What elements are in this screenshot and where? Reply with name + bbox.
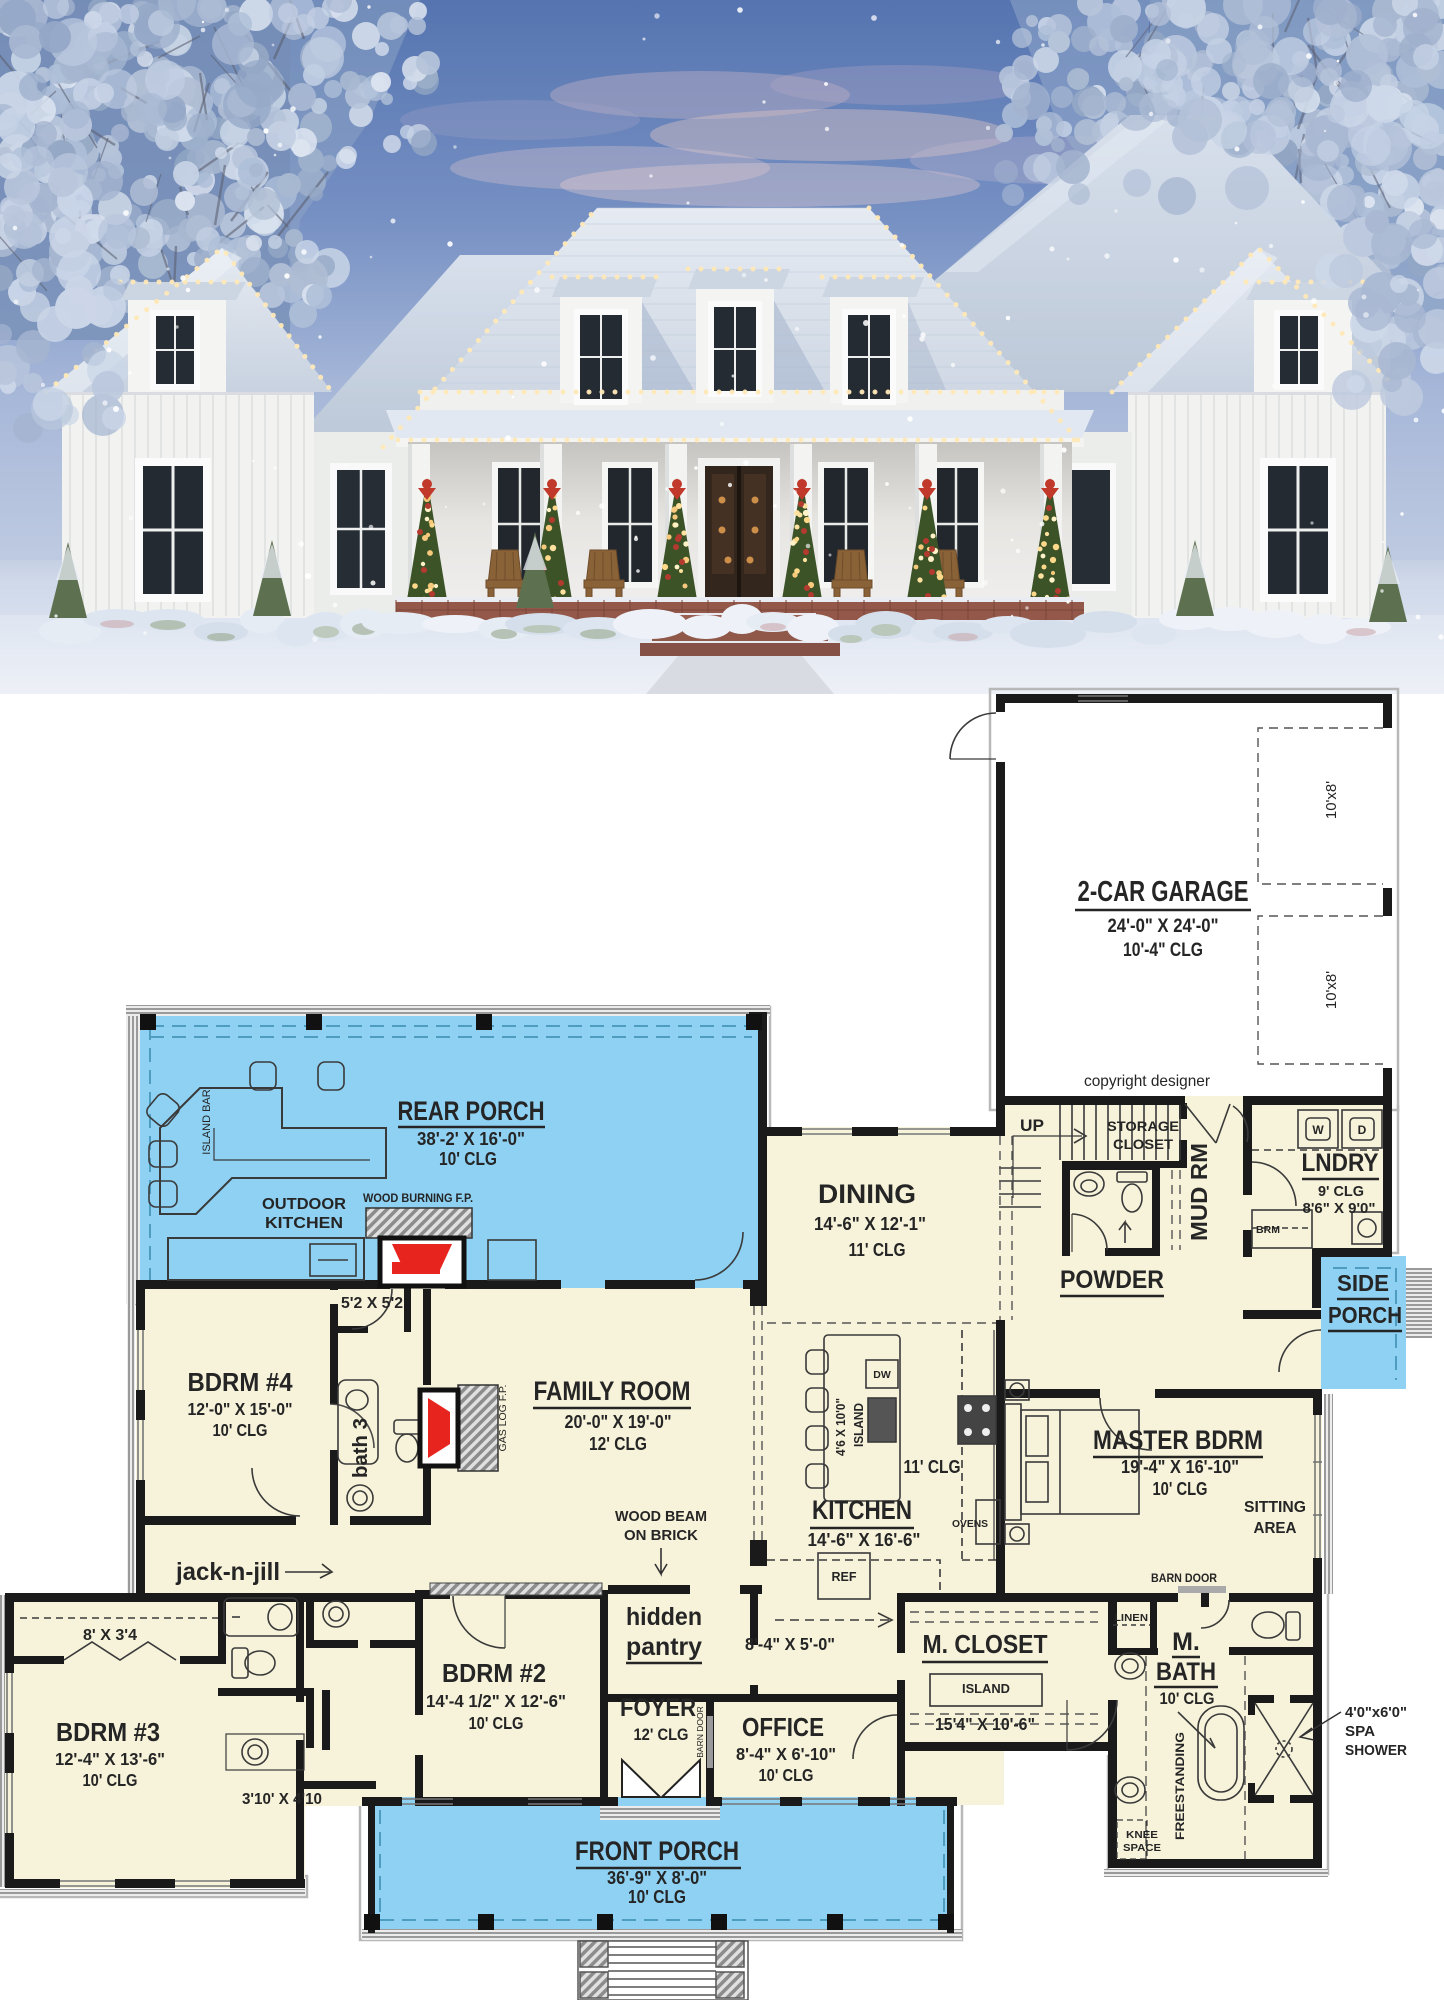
svg-text:KITCHEN: KITCHEN xyxy=(265,1215,343,1232)
svg-text:copyright designer: copyright designer xyxy=(1084,1073,1211,1090)
svg-text:BDRM #4: BDRM #4 xyxy=(188,1367,293,1397)
svg-text:24'-0" X 24'-0": 24'-0" X 24'-0" xyxy=(1108,916,1219,937)
svg-text:FREESTANDING: FREESTANDING xyxy=(1173,1732,1187,1840)
svg-text:10' CLG: 10' CLG xyxy=(628,1887,686,1907)
svg-text:LINEN: LINEN xyxy=(1114,1613,1148,1624)
svg-text:hidden: hidden xyxy=(626,1603,702,1631)
svg-text:FAMILY ROOM: FAMILY ROOM xyxy=(534,1376,691,1406)
svg-text:2-CAR GARAGE: 2-CAR GARAGE xyxy=(1078,876,1249,908)
svg-text:14'-4 1/2" X 12'-6": 14'-4 1/2" X 12'-6" xyxy=(426,1691,566,1711)
svg-text:DINING: DINING xyxy=(818,1179,916,1209)
svg-text:UP: UP xyxy=(1020,1116,1044,1135)
svg-text:STORAGE: STORAGE xyxy=(1107,1118,1179,1134)
svg-text:19'-4" X 16'-10": 19'-4" X 16'-10" xyxy=(1121,1457,1239,1477)
svg-text:REF: REF xyxy=(832,1570,857,1584)
svg-text:10' CLG: 10' CLG xyxy=(1153,1479,1208,1499)
svg-text:12'-4" X 13'-6": 12'-4" X 13'-6" xyxy=(55,1749,165,1769)
svg-text:jack-n-jill: jack-n-jill xyxy=(175,1558,280,1586)
svg-text:12' CLG: 12' CLG xyxy=(634,1725,689,1744)
svg-text:MUD RM: MUD RM xyxy=(1186,1143,1212,1241)
svg-text:BDRM #3: BDRM #3 xyxy=(56,1717,160,1747)
svg-text:10'x8': 10'x8' xyxy=(1323,781,1340,819)
svg-text:3'10' X 4'10: 3'10' X 4'10 xyxy=(242,1791,322,1808)
svg-text:38'-2' X 16'-0": 38'-2' X 16'-0" xyxy=(417,1129,525,1149)
svg-text:10' CLG: 10' CLG xyxy=(83,1770,138,1790)
svg-text:DW: DW xyxy=(873,1369,891,1381)
svg-text:OUTDOOR: OUTDOOR xyxy=(262,1196,346,1213)
svg-text:M. CLOSET: M. CLOSET xyxy=(923,1629,1048,1659)
svg-text:OFFICE: OFFICE xyxy=(742,1712,824,1742)
svg-text:SPA: SPA xyxy=(1345,1723,1375,1740)
svg-text:SITTING: SITTING xyxy=(1244,1499,1306,1516)
svg-text:WOOD BEAM: WOOD BEAM xyxy=(615,1508,707,1525)
svg-text:BARN DOOR: BARN DOOR xyxy=(695,1706,705,1757)
svg-text:ON BRICK: ON BRICK xyxy=(624,1527,698,1544)
svg-text:11' CLG: 11' CLG xyxy=(904,1457,961,1477)
svg-text:SHOWER: SHOWER xyxy=(1345,1742,1407,1759)
svg-text:PORCH: PORCH xyxy=(1328,1302,1402,1328)
svg-text:4'0"x6'0": 4'0"x6'0" xyxy=(1345,1704,1407,1721)
svg-text:MASTER BDRM: MASTER BDRM xyxy=(1093,1425,1263,1455)
svg-text:M.: M. xyxy=(1172,1628,1200,1656)
svg-text:FRONT PORCH: FRONT PORCH xyxy=(575,1836,739,1866)
svg-text:BARN DOOR: BARN DOOR xyxy=(1151,1573,1218,1585)
svg-text:12' CLG: 12' CLG xyxy=(589,1434,647,1454)
svg-text:ISLAND: ISLAND xyxy=(962,1681,1010,1696)
svg-text:GAS LOG F.P.: GAS LOG F.P. xyxy=(497,1385,509,1452)
svg-text:W: W xyxy=(1312,1123,1324,1137)
svg-text:15'4" X 10'-6": 15'4" X 10'-6" xyxy=(935,1714,1035,1734)
svg-text:12'-0" X 15'-0": 12'-0" X 15'-0" xyxy=(188,1399,293,1419)
svg-text:10' CLG: 10' CLG xyxy=(469,1713,524,1733)
svg-text:8'-4" X 5'-0": 8'-4" X 5'-0" xyxy=(745,1634,835,1654)
svg-text:FOYER: FOYER xyxy=(620,1694,696,1722)
svg-text:5'2 X 5'2: 5'2 X 5'2 xyxy=(341,1295,403,1312)
svg-text:KITCHEN: KITCHEN xyxy=(812,1495,912,1525)
svg-text:ISLAND BAR: ISLAND BAR xyxy=(201,1089,213,1154)
svg-text:10' CLG: 10' CLG xyxy=(439,1149,497,1169)
svg-text:8'-4" X 6'-10": 8'-4" X 6'-10" xyxy=(736,1744,836,1764)
svg-text:10'x8': 10'x8' xyxy=(1323,971,1340,1009)
svg-text:11' CLG: 11' CLG xyxy=(849,1240,906,1260)
svg-text:BATH: BATH xyxy=(1156,1658,1216,1686)
svg-text:4'6 X 10'0": 4'6 X 10'0" xyxy=(833,1398,848,1456)
svg-text:POWDER: POWDER xyxy=(1060,1266,1164,1294)
svg-text:SIDE: SIDE xyxy=(1337,1270,1389,1296)
svg-text:8'6" X 9'0": 8'6" X 9'0" xyxy=(1303,1200,1376,1217)
svg-text:SPACE: SPACE xyxy=(1123,1843,1161,1854)
svg-text:10'-4" CLG: 10'-4" CLG xyxy=(1123,940,1203,961)
svg-text:OVENS: OVENS xyxy=(952,1518,988,1530)
svg-text:10' CLG: 10' CLG xyxy=(759,1765,814,1785)
svg-text:ISLAND: ISLAND xyxy=(851,1403,866,1447)
svg-text:KNEE: KNEE xyxy=(1126,1830,1158,1841)
svg-text:BDRM #2: BDRM #2 xyxy=(442,1658,546,1688)
svg-text:CLOSET: CLOSET xyxy=(1113,1136,1173,1152)
svg-text:LNDRY: LNDRY xyxy=(1302,1149,1379,1177)
svg-text:36'-9" X 8'-0": 36'-9" X 8'-0" xyxy=(607,1868,707,1888)
svg-text:14'-6" X 12'-1": 14'-6" X 12'-1" xyxy=(814,1214,926,1234)
svg-text:REAR PORCH: REAR PORCH xyxy=(398,1096,545,1126)
svg-text:10' CLG: 10' CLG xyxy=(1160,1689,1215,1708)
svg-text:20'-0" X 19'-0": 20'-0" X 19'-0" xyxy=(565,1412,672,1432)
svg-text:AREA: AREA xyxy=(1254,1520,1297,1537)
svg-text:BRM: BRM xyxy=(1256,1224,1280,1236)
svg-text:10' CLG: 10' CLG xyxy=(213,1420,268,1440)
svg-text:pantry: pantry xyxy=(626,1633,702,1661)
svg-text:9' CLG: 9' CLG xyxy=(1318,1183,1364,1200)
svg-text:8' X 3'4: 8' X 3'4 xyxy=(83,1627,137,1644)
svg-text:14'-6" X 16'-6": 14'-6" X 16'-6" xyxy=(808,1530,921,1550)
svg-text:D: D xyxy=(1358,1123,1367,1137)
svg-text:bath 3: bath 3 xyxy=(350,1418,372,1478)
svg-text:WOOD BURNING F.P.: WOOD BURNING F.P. xyxy=(363,1193,473,1205)
